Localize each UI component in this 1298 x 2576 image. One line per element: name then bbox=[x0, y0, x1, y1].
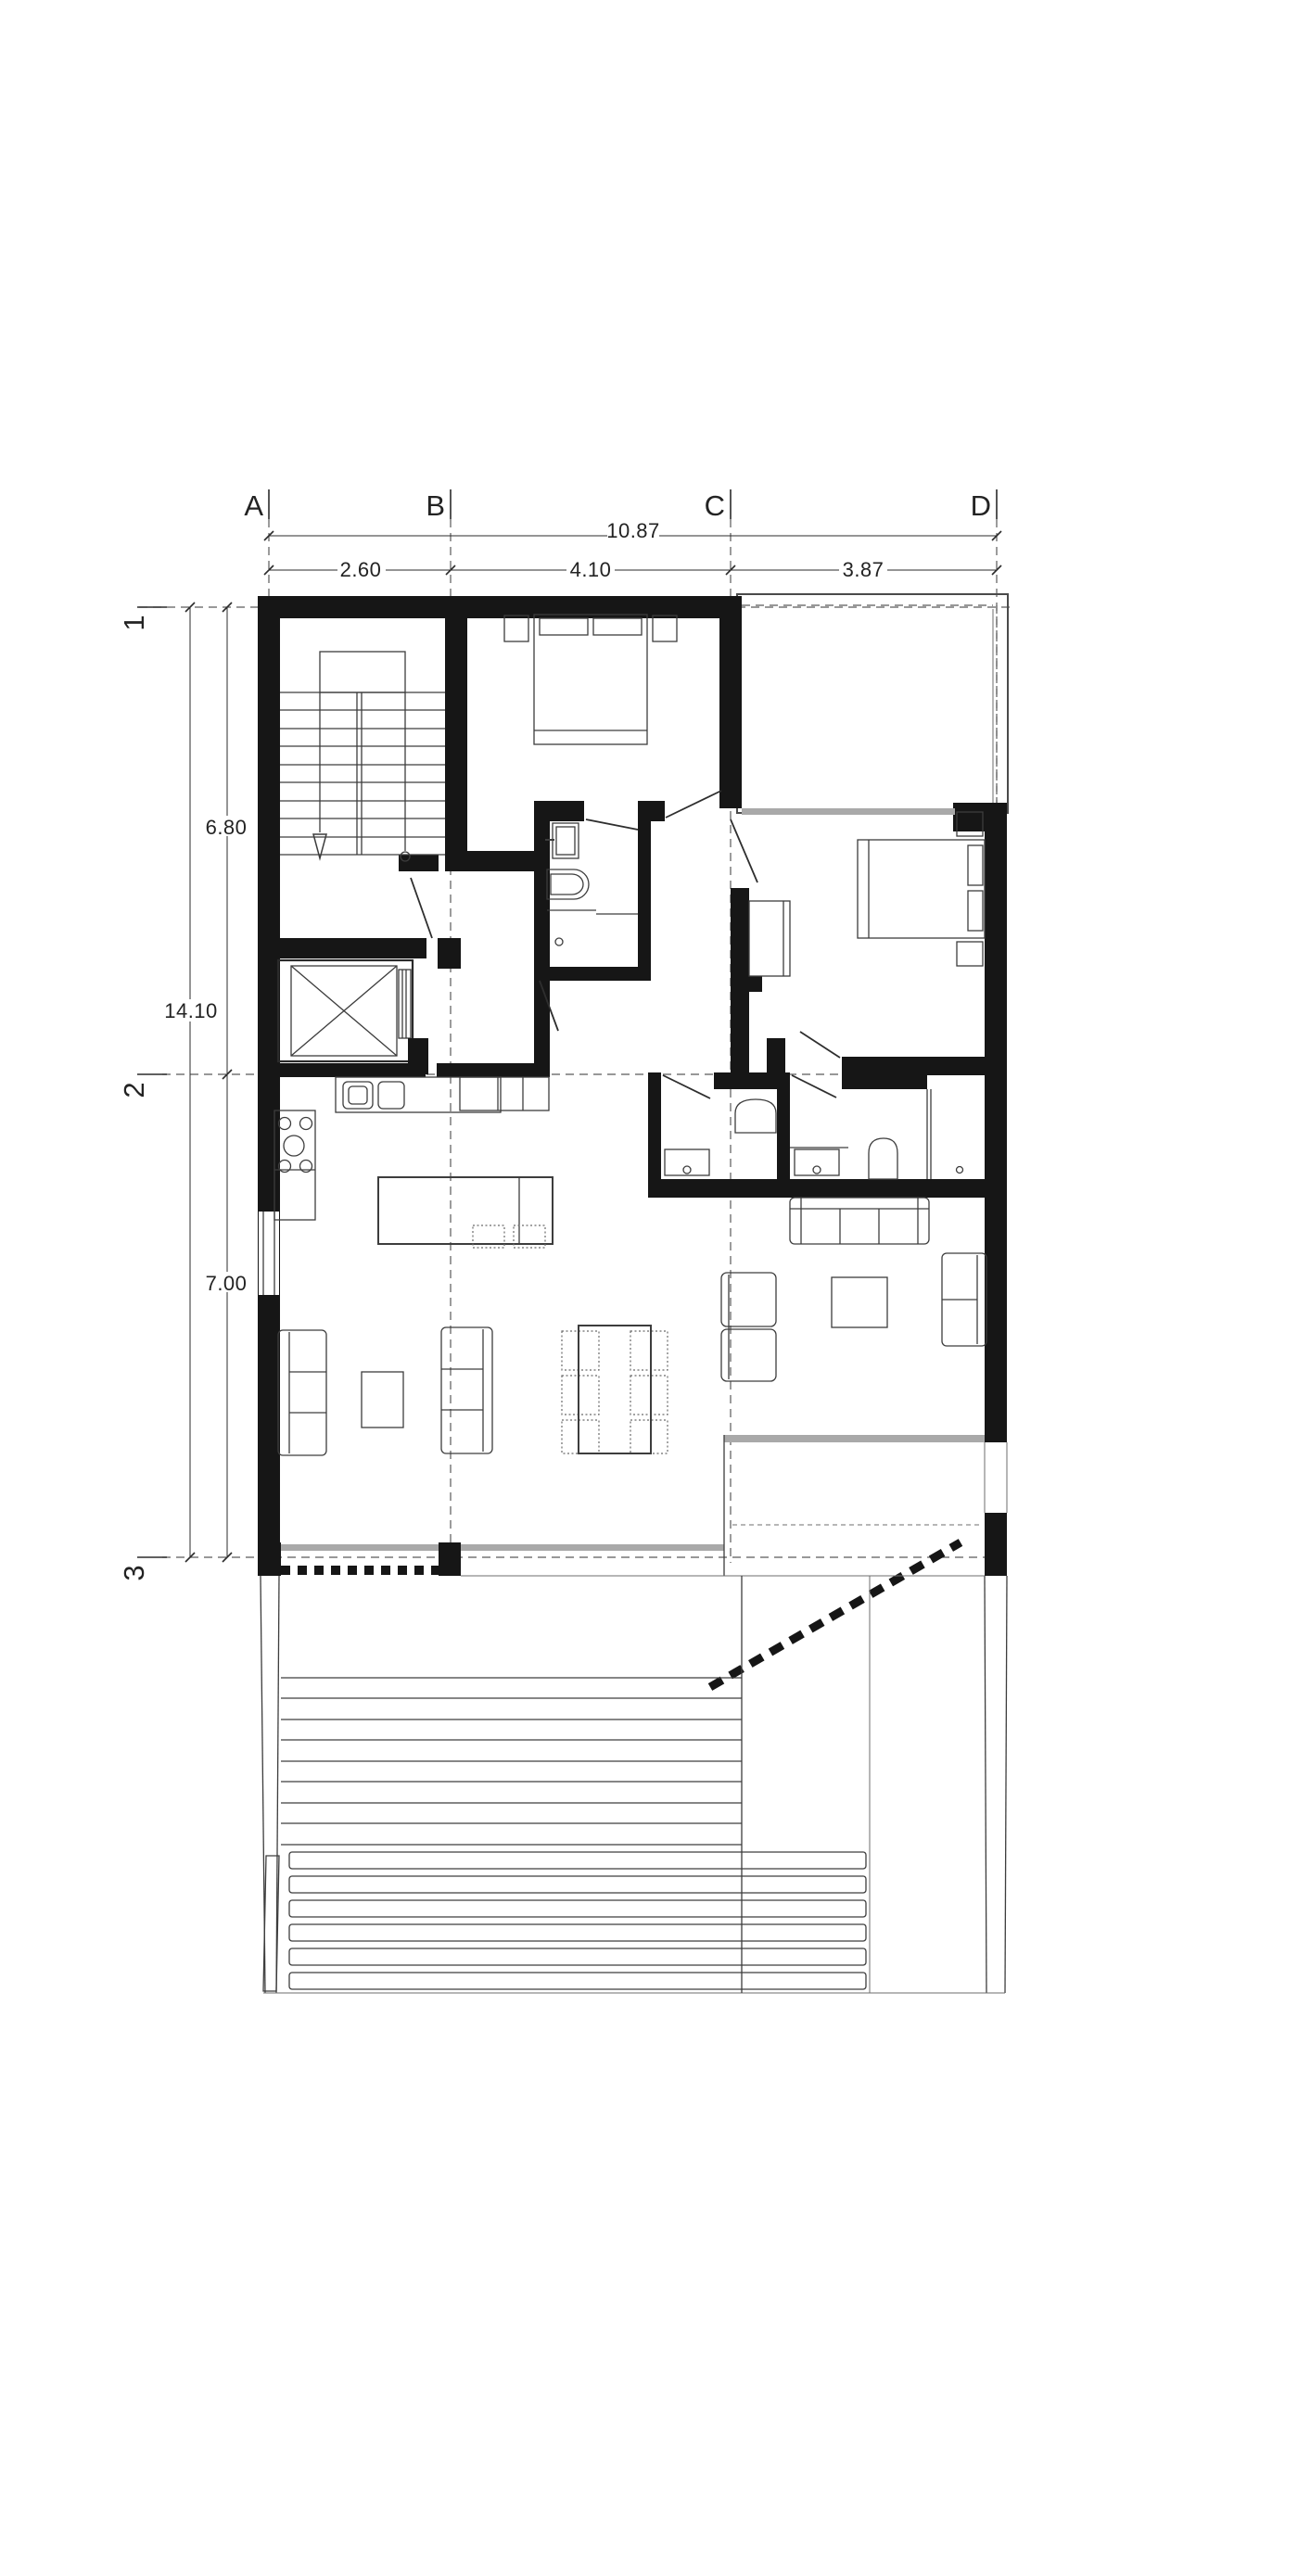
dining-chair bbox=[562, 1331, 599, 1370]
sink bbox=[795, 1149, 839, 1175]
living-south-window bbox=[724, 1435, 985, 1442]
ensuite-bathroom bbox=[790, 1089, 963, 1179]
door-bathroom-upper bbox=[586, 819, 638, 830]
cooktop-counter bbox=[274, 1110, 315, 1220]
door-ensuite bbox=[792, 1075, 836, 1098]
kitchen-cabinet bbox=[460, 1077, 549, 1110]
dim-span-ab: 2.60 bbox=[340, 558, 382, 581]
dining-table bbox=[579, 1326, 651, 1453]
armchair-pair-top bbox=[721, 1273, 776, 1326]
terrace-lower bbox=[261, 1435, 1007, 1993]
sofa-left bbox=[278, 1330, 326, 1455]
grid-label-c: C bbox=[705, 489, 725, 522]
terrace-deck-slats bbox=[263, 1852, 866, 1991]
wall-right bbox=[985, 813, 1007, 1442]
kitchen-island bbox=[378, 1177, 553, 1244]
elevator-door bbox=[399, 970, 411, 1038]
door-corridor bbox=[731, 819, 757, 882]
pillow bbox=[968, 891, 983, 931]
grid-label-a: A bbox=[244, 489, 263, 522]
nightstand bbox=[957, 942, 983, 966]
side-table bbox=[832, 1277, 887, 1327]
grid-label-3: 3 bbox=[118, 1565, 150, 1580]
walls bbox=[258, 596, 1007, 1576]
armchair-pair-bottom bbox=[721, 1329, 776, 1381]
dining-chair bbox=[630, 1420, 668, 1453]
door-bedroom-1 bbox=[666, 791, 721, 818]
bathroom-upper bbox=[545, 823, 638, 945]
sofa-north bbox=[790, 1198, 929, 1244]
sink bbox=[665, 1149, 709, 1175]
hall-closet bbox=[749, 901, 790, 976]
dimension-annotations: A B C D 10.87 2.60 4.10 3.87 1 2 3 14 bbox=[118, 489, 1001, 1581]
dining-chair bbox=[630, 1376, 668, 1415]
dim-span-bc: 4.10 bbox=[570, 558, 612, 581]
door-wc bbox=[663, 1075, 710, 1098]
dining-chair bbox=[562, 1420, 599, 1453]
grid-label-d: D bbox=[971, 489, 991, 522]
dim-total-height: 14.10 bbox=[164, 999, 218, 1022]
dining-chair bbox=[562, 1376, 599, 1415]
terrace-door-left bbox=[281, 1544, 439, 1551]
door-bedroom-2 bbox=[800, 1032, 840, 1058]
grid-label-2: 2 bbox=[118, 1082, 150, 1098]
pillow bbox=[968, 845, 983, 885]
elevator bbox=[278, 960, 428, 1074]
staircase bbox=[280, 652, 445, 861]
dim-span-cd: 3.87 bbox=[843, 558, 884, 581]
floor-plan-drawing: A B C D 10.87 2.60 4.10 3.87 1 2 3 14 bbox=[0, 0, 1298, 2576]
grid-label-1: 1 bbox=[118, 615, 150, 630]
dashed-diagonal-line bbox=[710, 1542, 961, 1687]
bedroom-1 bbox=[504, 615, 677, 744]
floor-plan-page: A B C D 10.87 2.60 4.10 3.87 1 2 3 14 bbox=[0, 0, 1298, 2576]
bedroom2-window bbox=[742, 808, 955, 815]
wc-room bbox=[665, 1099, 776, 1175]
toilet bbox=[869, 1138, 897, 1179]
wall-left bbox=[258, 596, 280, 1568]
dim-span-12: 6.80 bbox=[206, 816, 248, 839]
kitchen bbox=[274, 1077, 553, 1248]
pillow bbox=[593, 618, 642, 635]
terrace-door-right bbox=[461, 1544, 724, 1551]
nightstand bbox=[504, 615, 528, 641]
bed bbox=[534, 615, 647, 744]
sofa-middle bbox=[441, 1327, 492, 1453]
toilet bbox=[735, 1099, 776, 1133]
terrace-steps bbox=[281, 1678, 742, 1845]
kitchen-counter bbox=[336, 1077, 501, 1112]
pillow bbox=[540, 618, 588, 635]
coffee-table bbox=[362, 1372, 403, 1428]
bed bbox=[858, 840, 985, 938]
dining-chair bbox=[630, 1331, 668, 1370]
dim-span-23: 7.00 bbox=[206, 1272, 248, 1295]
dim-total-width: 10.87 bbox=[606, 519, 660, 542]
shower-drain bbox=[957, 1167, 963, 1174]
grid-label-b: B bbox=[426, 489, 445, 522]
bedroom-2 bbox=[858, 812, 985, 966]
wall-grid-c bbox=[719, 596, 742, 808]
dining-set bbox=[562, 1326, 668, 1453]
sink-basin-right bbox=[378, 1082, 404, 1109]
nightstand bbox=[653, 615, 677, 641]
terrace-upper bbox=[737, 594, 1008, 813]
floor-drain bbox=[555, 938, 563, 945]
door-stair-lobby bbox=[411, 878, 432, 938]
